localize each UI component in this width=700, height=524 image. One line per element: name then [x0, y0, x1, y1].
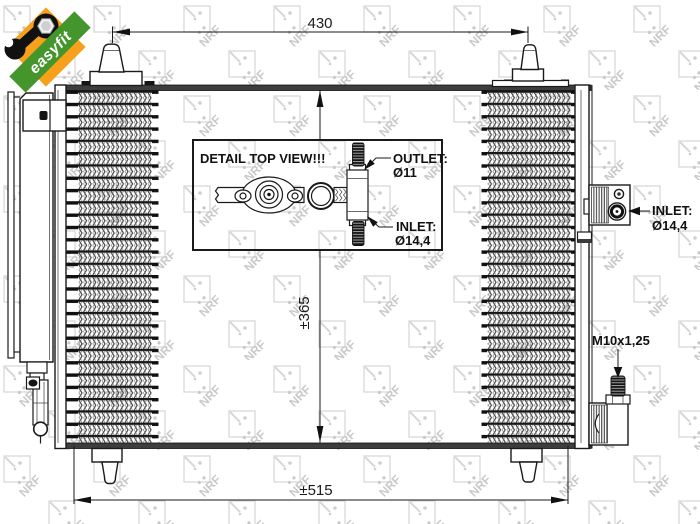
side-plate — [8, 92, 14, 358]
left-header — [55, 85, 66, 449]
fitting-body — [347, 170, 368, 220]
drier-bracket — [23, 100, 66, 131]
drier-sight-glass — [34, 422, 48, 436]
detail-title: DETAIL TOP VIEW!!! — [200, 151, 325, 166]
side-inlet-value: Ø14,4 — [652, 218, 688, 233]
outlet-label: OUTLET: — [393, 151, 448, 166]
inlet-label: INLET: — [396, 219, 436, 234]
weld-tab — [82, 81, 91, 86]
core-left-fins — [78, 91, 152, 444]
outlet-stud — [353, 143, 365, 166]
inlet-value: Ø14,4 — [395, 233, 431, 248]
right-header — [575, 85, 592, 449]
technical-drawing: NRF NRF — [0, 0, 700, 524]
drawing-page: NRF NRF — [0, 0, 700, 524]
m10-stud — [611, 376, 625, 396]
bracket-bolt — [40, 111, 48, 120]
side-inlet-label: INLET: — [652, 203, 692, 218]
tube-ends-right-inner — [482, 91, 488, 444]
tube-ends-left-inner — [152, 91, 159, 444]
m10-label: M10x1,25 — [592, 333, 650, 348]
core-right-fins — [487, 91, 571, 444]
tube-ends-left-outer — [66, 91, 78, 444]
inlet-port — [608, 203, 625, 220]
dim-515-label: ±515 — [299, 482, 332, 499]
inlet-stud — [353, 222, 365, 246]
bottom-band — [62, 443, 591, 449]
clamp-bolt — [29, 380, 38, 387]
weld-tab — [145, 81, 155, 86]
dim-365-label: ±365 — [296, 296, 313, 329]
dim-430-label: 430 — [307, 15, 332, 32]
outlet-value: Ø11 — [393, 165, 417, 180]
header-tab-shadow — [578, 239, 592, 243]
